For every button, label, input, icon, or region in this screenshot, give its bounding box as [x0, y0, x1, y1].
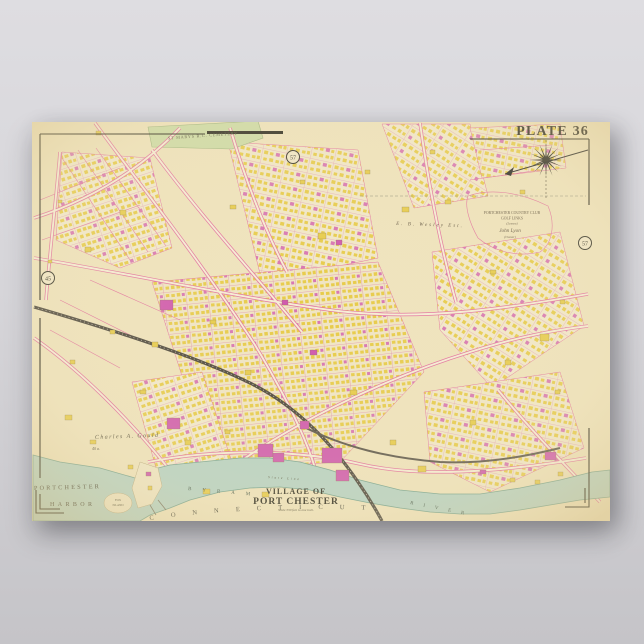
- map-canvas: 45 57 57 PLATE 36 ST MARYS R.C. CEMETERY…: [32, 122, 610, 521]
- paper-aging-overlay: [32, 122, 610, 521]
- vintage-map-poster: 45 57 57 PLATE 36 ST MARYS R.C. CEMETERY…: [32, 122, 610, 521]
